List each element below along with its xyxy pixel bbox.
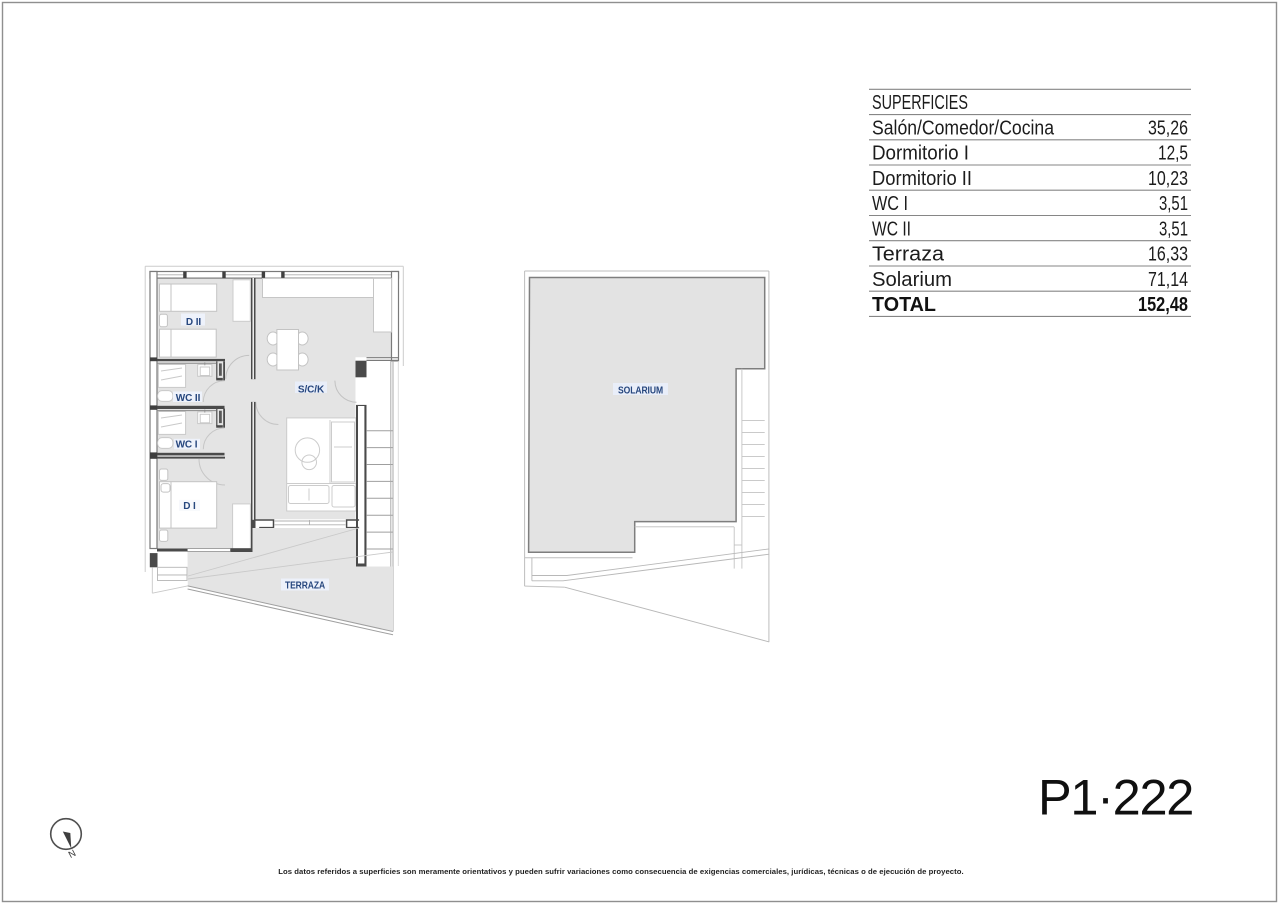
svg-text:3,51: 3,51	[1159, 192, 1188, 215]
svg-text:SOLARIUM: SOLARIUM	[618, 386, 663, 397]
svg-text:16,33: 16,33	[1148, 243, 1188, 266]
svg-text:Los datos referidos a superfic: Los datos referidos a superficies son me…	[278, 867, 963, 876]
svg-text:WC I: WC I	[872, 192, 908, 215]
svg-text:D I: D I	[183, 501, 196, 512]
svg-text:TOTAL: TOTAL	[872, 293, 936, 316]
svg-text:71,14: 71,14	[1148, 268, 1188, 291]
svg-text:D II: D II	[186, 317, 201, 328]
svg-text:P1·222: P1·222	[1038, 769, 1193, 826]
svg-text:TERRAZA: TERRAZA	[285, 581, 325, 592]
svg-text:WC II: WC II	[176, 393, 201, 404]
svg-text:35,26: 35,26	[1148, 117, 1188, 140]
svg-text:12,5: 12,5	[1158, 142, 1188, 165]
svg-text:Terraza: Terraza	[872, 243, 945, 266]
svg-text:152,48: 152,48	[1138, 293, 1188, 316]
svg-text:Salón/Comedor/Cocina: Salón/Comedor/Cocina	[872, 117, 1055, 140]
svg-text:S/C/K: S/C/K	[298, 385, 325, 396]
svg-text:SUPERFICIES: SUPERFICIES	[872, 91, 968, 114]
svg-text:Dormitorio I: Dormitorio I	[872, 142, 969, 165]
svg-text:3,51: 3,51	[1159, 217, 1188, 240]
svg-text:Dormitorio II: Dormitorio II	[872, 167, 972, 190]
svg-text:Solarium: Solarium	[872, 268, 952, 291]
svg-text:WC I: WC I	[176, 440, 198, 451]
svg-text:WC II: WC II	[872, 217, 911, 240]
svg-text:10,23: 10,23	[1148, 167, 1188, 190]
